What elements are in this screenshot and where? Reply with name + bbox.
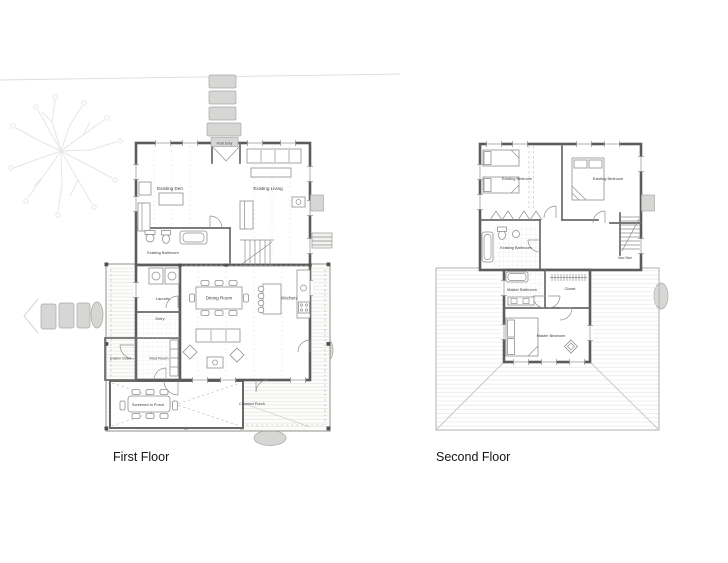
screened-in-porch bbox=[110, 381, 243, 428]
floor-plans-canvas: Front Entry Existing Den Existing Living… bbox=[0, 0, 728, 563]
room-label-closet: Closet bbox=[564, 286, 576, 291]
room-label-existing-den: Existing Den bbox=[157, 186, 183, 191]
room-label-kitchen: Kitchen bbox=[281, 296, 297, 301]
room-label-laundry: Laundry bbox=[156, 296, 170, 301]
room-label-existing-living: Existing Living bbox=[253, 186, 283, 191]
room-label-dining-room: Dining Room bbox=[206, 296, 233, 301]
room-label-entry: Entry bbox=[155, 316, 164, 321]
second-floor-title: Second Floor bbox=[436, 450, 510, 464]
first-floor-plan: Front Entry Existing Den Existing Living… bbox=[105, 138, 333, 432]
first-floor-title: First Floor bbox=[113, 450, 169, 464]
room-label-existing-bathroom: Existing Bathroom bbox=[147, 250, 179, 255]
room-label-new-stair: New Stair bbox=[618, 256, 633, 260]
front-walkway-stones bbox=[207, 75, 241, 136]
room-label-existing-bathroom-2f: Existing Bathroom bbox=[500, 245, 532, 250]
side-walkway-stones bbox=[24, 299, 103, 333]
room-label-mud-room: Mud Room bbox=[149, 356, 168, 361]
room-label-master-bathroom: Master Bathroom bbox=[507, 287, 537, 292]
room-label-front-entry: Front Entry bbox=[217, 142, 233, 146]
room-label-existing-bedroom-right: Existing Bedroom bbox=[593, 176, 624, 181]
room-label-exterior-closet: Exterior Closet bbox=[110, 357, 131, 361]
room-label-master-bedroom: Master Bedroom bbox=[537, 333, 566, 338]
tree-graphic bbox=[9, 95, 122, 217]
property-line bbox=[0, 74, 400, 80]
floor-plan-sheet: Front Entry Existing Den Existing Living… bbox=[0, 0, 728, 563]
second-floor-plan: Existing Bedroom Existing Bedroom Existi… bbox=[436, 141, 659, 430]
room-label-covered-porch: Covered Porch bbox=[239, 401, 265, 406]
shrub-blob-bottom bbox=[254, 431, 286, 446]
room-label-screened-in-porch: Screened-in Porch bbox=[132, 402, 164, 407]
room-label-existing-bedroom-left: Existing Bedroom bbox=[502, 176, 533, 181]
